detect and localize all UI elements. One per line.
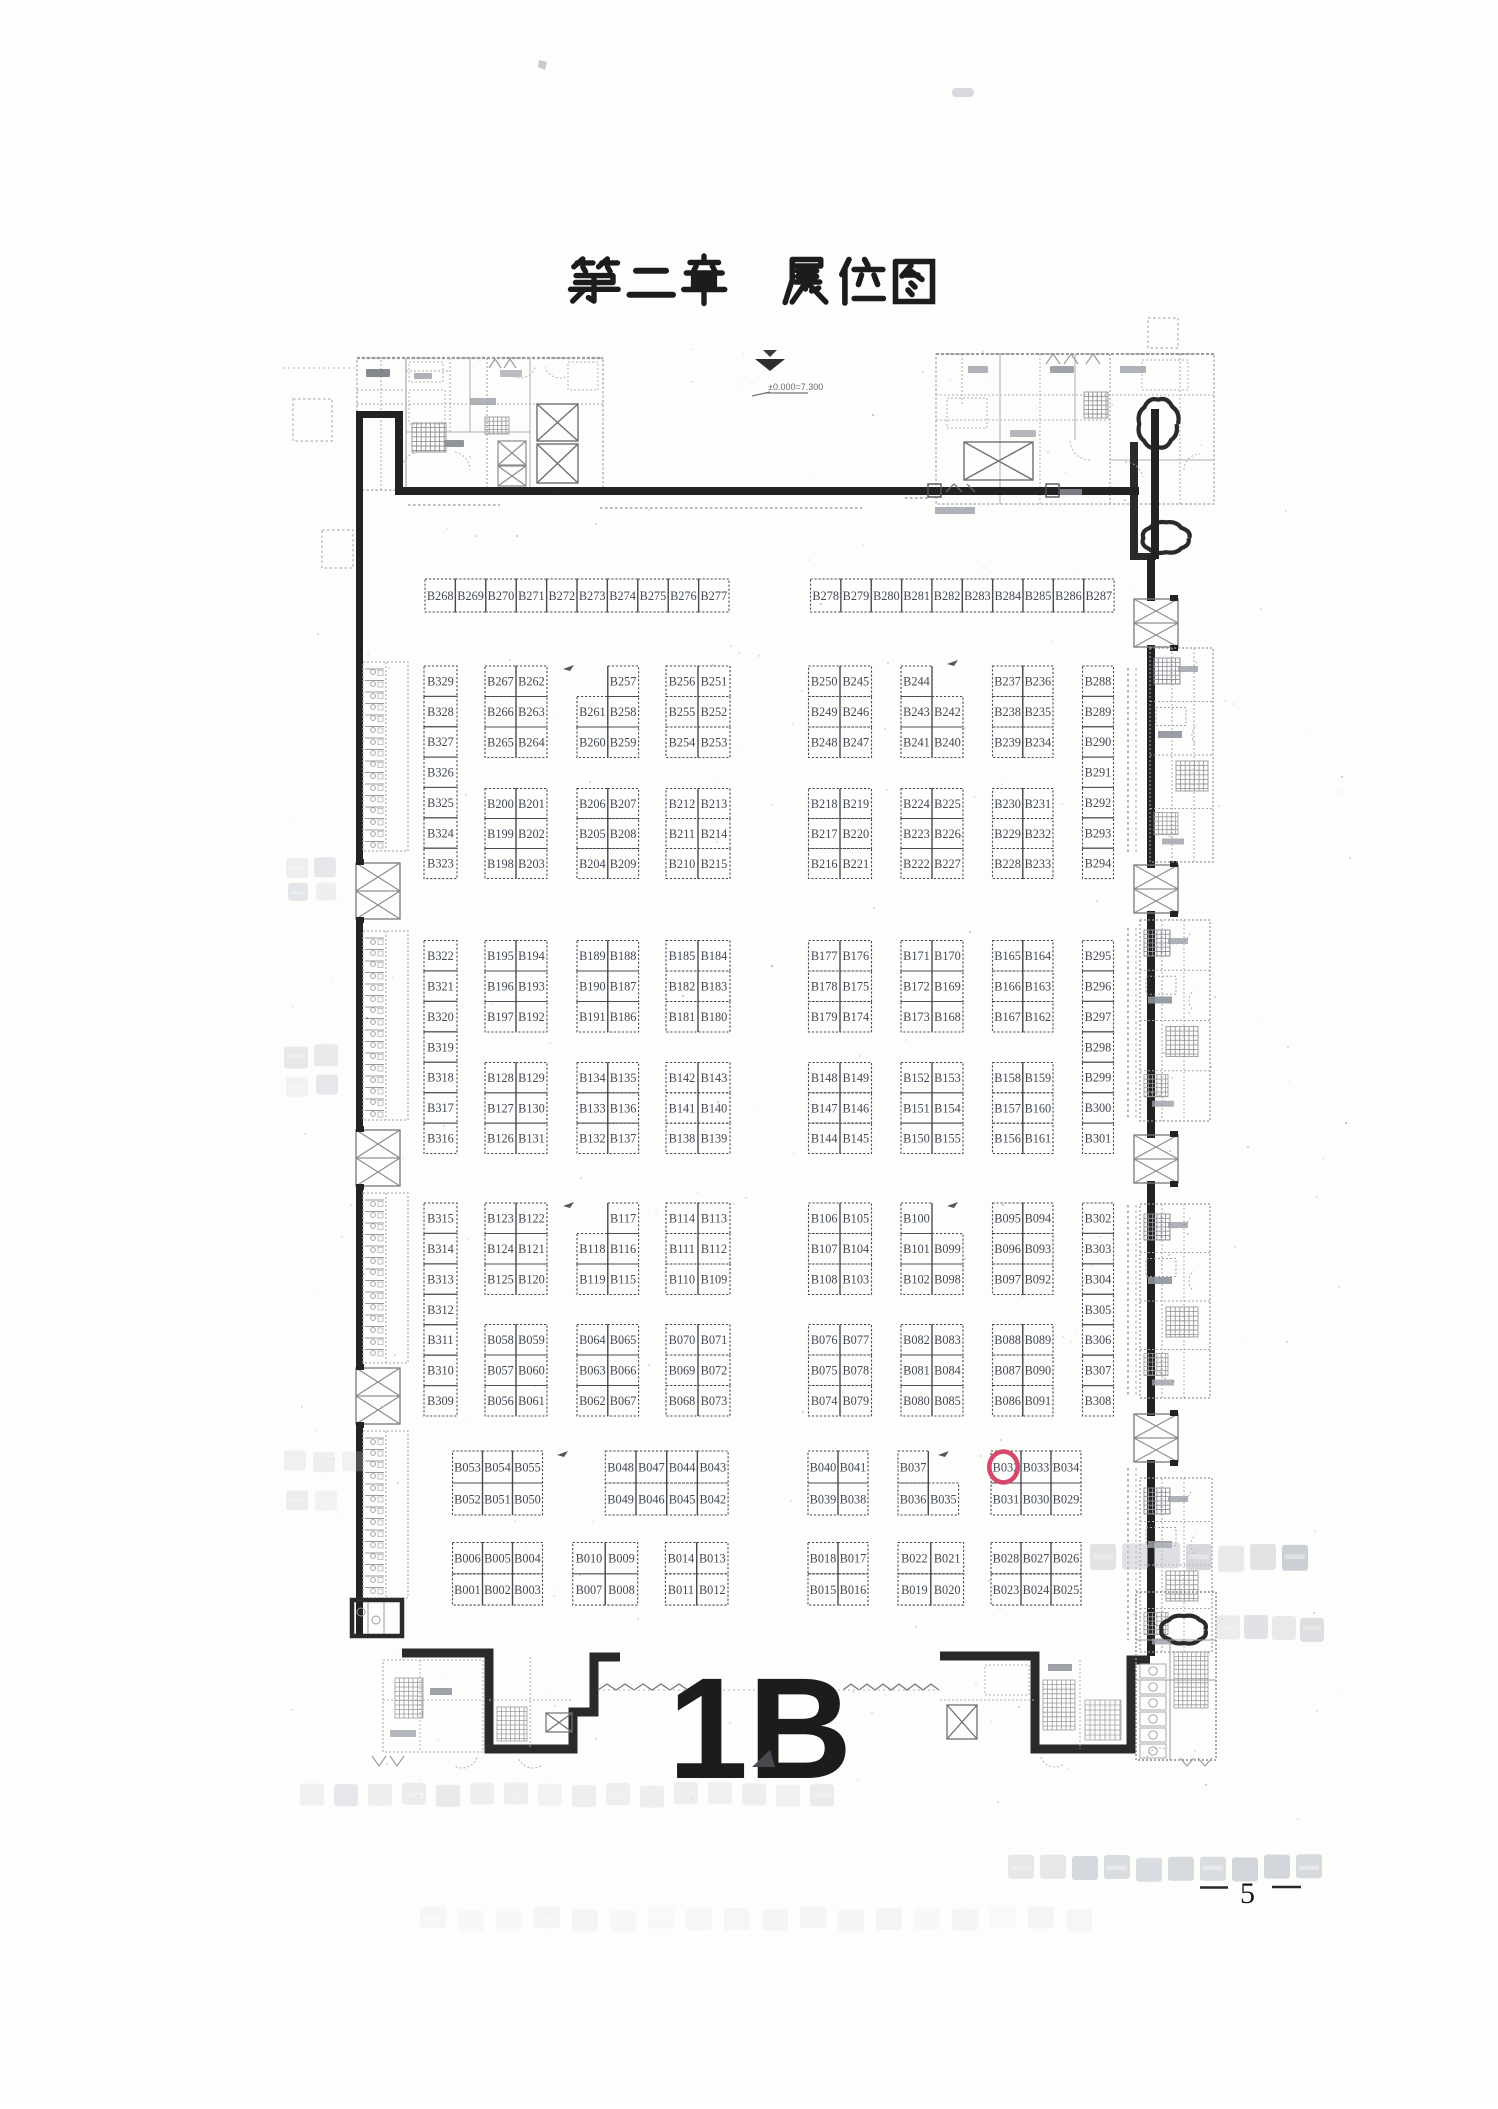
svg-text:B067: B067	[610, 1394, 637, 1408]
svg-text:B210: B210	[669, 857, 696, 871]
svg-text:B194: B194	[518, 949, 545, 963]
svg-text:B234: B234	[1025, 736, 1052, 750]
svg-text:B213: B213	[701, 797, 728, 811]
svg-text:B259: B259	[610, 736, 637, 750]
svg-text:B317: B317	[427, 1101, 454, 1115]
svg-text:B070: B070	[669, 1333, 696, 1347]
svg-text:B008: B008	[608, 1583, 635, 1597]
svg-text:B007: B007	[576, 1583, 603, 1597]
svg-text:B174: B174	[842, 1010, 869, 1024]
svg-text:B215: B215	[701, 857, 728, 871]
svg-text:B077: B077	[842, 1333, 869, 1347]
svg-text:B097: B097	[994, 1273, 1021, 1287]
svg-text:B075: B075	[811, 1364, 838, 1378]
svg-text:B093: B093	[1025, 1242, 1052, 1256]
svg-text:B313: B313	[427, 1272, 454, 1286]
svg-text:B298: B298	[1085, 1040, 1112, 1054]
svg-text:B137: B137	[610, 1132, 637, 1146]
svg-text:B019: B019	[901, 1583, 928, 1597]
svg-text:B066: B066	[610, 1364, 637, 1378]
svg-text:B282: B282	[934, 589, 961, 603]
svg-text:B329: B329	[427, 675, 454, 689]
svg-text:B033: B033	[1023, 1460, 1050, 1474]
svg-text:B201: B201	[518, 797, 545, 811]
svg-text:B327: B327	[427, 735, 454, 749]
svg-text:B085: B085	[934, 1394, 961, 1408]
svg-text:B187: B187	[610, 980, 637, 994]
svg-text:B158: B158	[994, 1071, 1021, 1085]
svg-text:B171: B171	[903, 949, 930, 963]
svg-text:B071: B071	[701, 1333, 728, 1347]
svg-text:B020: B020	[934, 1583, 961, 1597]
svg-text:B036: B036	[900, 1492, 927, 1506]
svg-text:B001: B001	[454, 1583, 481, 1597]
svg-text:B204: B204	[579, 857, 606, 871]
svg-text:B144: B144	[811, 1132, 838, 1146]
svg-text:B127: B127	[487, 1101, 514, 1115]
svg-text:B073: B073	[701, 1394, 728, 1408]
svg-text:B214: B214	[701, 827, 728, 841]
svg-text:B086: B086	[994, 1394, 1021, 1408]
svg-text:B160: B160	[1025, 1101, 1052, 1115]
svg-text:B112: B112	[701, 1242, 727, 1256]
svg-text:B069: B069	[669, 1364, 696, 1378]
svg-text:B025: B025	[1053, 1583, 1080, 1597]
svg-text:B142: B142	[669, 1071, 696, 1085]
svg-text:B129: B129	[518, 1071, 545, 1085]
svg-text:B303: B303	[1085, 1242, 1112, 1256]
svg-text:B311: B311	[427, 1333, 453, 1347]
svg-text:B286: B286	[1055, 589, 1082, 603]
svg-text:B184: B184	[701, 949, 728, 963]
svg-text:B206: B206	[579, 797, 606, 811]
svg-text:B055: B055	[514, 1460, 541, 1474]
svg-text:B176: B176	[842, 949, 869, 963]
svg-text:B316: B316	[427, 1132, 454, 1146]
svg-text:B314: B314	[427, 1242, 454, 1256]
svg-text:B218: B218	[811, 797, 838, 811]
svg-text:B048: B048	[607, 1460, 634, 1474]
svg-text:B258: B258	[610, 705, 637, 719]
svg-text:B140: B140	[701, 1101, 728, 1115]
svg-text:B217: B217	[811, 827, 838, 841]
svg-text:B167: B167	[994, 1010, 1021, 1024]
svg-text:B078: B078	[842, 1364, 869, 1378]
svg-text:B043: B043	[699, 1460, 726, 1474]
svg-text:B030: B030	[1023, 1492, 1050, 1506]
svg-text:B056: B056	[487, 1394, 514, 1408]
svg-text:B154: B154	[934, 1101, 961, 1115]
svg-text:B241: B241	[903, 736, 930, 750]
svg-text:B094: B094	[1025, 1212, 1052, 1226]
svg-text:B098: B098	[934, 1273, 961, 1287]
svg-text:B138: B138	[669, 1132, 696, 1146]
svg-text:B042: B042	[699, 1492, 726, 1506]
svg-text:B191: B191	[579, 1010, 606, 1024]
svg-text:B280: B280	[873, 589, 900, 603]
svg-text:B179: B179	[811, 1010, 838, 1024]
svg-text:B310: B310	[427, 1364, 454, 1378]
svg-text:B162: B162	[1025, 1010, 1052, 1024]
svg-text:B255: B255	[669, 705, 696, 719]
svg-text:B059: B059	[518, 1333, 545, 1347]
svg-text:B209: B209	[610, 857, 637, 871]
svg-text:B315: B315	[427, 1212, 454, 1226]
svg-text:B170: B170	[934, 949, 961, 963]
svg-text:B175: B175	[842, 980, 869, 994]
svg-text:B269: B269	[457, 589, 484, 603]
svg-text:±0.000=7.300: ±0.000=7.300	[768, 382, 823, 392]
svg-text:B300: B300	[1085, 1101, 1112, 1115]
svg-text:B172: B172	[903, 980, 930, 994]
svg-text:B128: B128	[487, 1071, 514, 1085]
svg-text:B002: B002	[484, 1583, 511, 1597]
svg-text:B133: B133	[579, 1101, 606, 1115]
svg-text:B029: B029	[1053, 1492, 1080, 1506]
svg-text:B004: B004	[514, 1552, 541, 1566]
svg-text:B278: B278	[812, 589, 839, 603]
svg-text:B251: B251	[701, 675, 728, 689]
svg-text:B053: B053	[454, 1460, 481, 1474]
svg-text:B028: B028	[993, 1552, 1020, 1566]
svg-text:B221: B221	[842, 857, 869, 871]
svg-text:B047: B047	[638, 1460, 665, 1474]
svg-text:B295: B295	[1085, 949, 1112, 963]
svg-text:B051: B051	[484, 1492, 511, 1506]
svg-text:B024: B024	[1023, 1583, 1050, 1597]
svg-text:B116: B116	[610, 1242, 636, 1256]
svg-text:B226: B226	[934, 827, 961, 841]
svg-text:B161: B161	[1025, 1132, 1052, 1146]
svg-text:B236: B236	[1025, 675, 1052, 689]
svg-text:B205: B205	[579, 827, 606, 841]
svg-text:B143: B143	[701, 1071, 728, 1085]
svg-text:B238: B238	[994, 705, 1021, 719]
svg-text:B294: B294	[1085, 857, 1112, 871]
svg-text:B242: B242	[934, 705, 961, 719]
svg-text:B166: B166	[994, 980, 1021, 994]
svg-text:B076: B076	[811, 1333, 838, 1347]
svg-text:B110: B110	[669, 1273, 695, 1287]
svg-text:B052: B052	[454, 1492, 481, 1506]
svg-text:B009: B009	[608, 1552, 635, 1566]
svg-text:B277: B277	[700, 589, 727, 603]
svg-text:B139: B139	[701, 1132, 728, 1146]
svg-text:B049: B049	[607, 1492, 634, 1506]
svg-text:B114: B114	[669, 1212, 695, 1226]
svg-text:B289: B289	[1085, 705, 1112, 719]
svg-text:B250: B250	[811, 675, 838, 689]
svg-text:B279: B279	[843, 589, 870, 603]
svg-text:B106: B106	[811, 1212, 838, 1226]
svg-text:B148: B148	[811, 1071, 838, 1085]
svg-text:B096: B096	[994, 1242, 1021, 1256]
svg-text:B003: B003	[514, 1583, 541, 1597]
svg-text:B102: B102	[903, 1273, 930, 1287]
svg-text:B062: B062	[579, 1394, 606, 1408]
svg-text:B291: B291	[1085, 766, 1112, 780]
svg-text:B088: B088	[994, 1333, 1021, 1347]
svg-text:B104: B104	[842, 1242, 869, 1256]
svg-text:B240: B240	[934, 736, 961, 750]
svg-text:B035: B035	[930, 1492, 957, 1506]
svg-text:B232: B232	[1025, 827, 1052, 841]
svg-text:B122: B122	[518, 1212, 545, 1226]
svg-text:B297: B297	[1085, 1010, 1112, 1024]
svg-text:B186: B186	[610, 1010, 637, 1024]
svg-text:B153: B153	[934, 1071, 961, 1085]
svg-text:B095: B095	[994, 1212, 1021, 1226]
svg-text:B017: B017	[840, 1552, 867, 1566]
svg-text:B080: B080	[903, 1394, 930, 1408]
svg-text:B268: B268	[427, 589, 454, 603]
svg-text:B248: B248	[811, 736, 838, 750]
svg-text:B054: B054	[484, 1460, 511, 1474]
svg-text:B109: B109	[701, 1273, 728, 1287]
svg-text:B090: B090	[1025, 1364, 1052, 1378]
svg-text:B013: B013	[699, 1552, 726, 1566]
svg-text:B220: B220	[842, 827, 869, 841]
svg-text:B237: B237	[994, 675, 1021, 689]
svg-text:B006: B006	[454, 1552, 481, 1566]
svg-text:B288: B288	[1085, 675, 1112, 689]
svg-text:B285: B285	[1025, 589, 1052, 603]
svg-text:B041: B041	[840, 1460, 867, 1474]
svg-text:B208: B208	[610, 827, 637, 841]
svg-text:B103: B103	[842, 1273, 869, 1287]
svg-text:B164: B164	[1025, 949, 1052, 963]
svg-text:B272: B272	[548, 589, 575, 603]
svg-text:B037: B037	[900, 1460, 927, 1474]
svg-text:B296: B296	[1085, 979, 1112, 993]
svg-text:B165: B165	[994, 949, 1021, 963]
svg-text:B120: B120	[518, 1273, 545, 1287]
svg-text:B177: B177	[811, 949, 838, 963]
svg-text:B198: B198	[487, 857, 514, 871]
svg-text:B249: B249	[811, 705, 838, 719]
svg-text:B126: B126	[487, 1132, 514, 1146]
svg-text:B200: B200	[487, 797, 514, 811]
svg-text:B044: B044	[669, 1460, 696, 1474]
svg-text:B207: B207	[610, 797, 637, 811]
svg-text:B119: B119	[579, 1273, 605, 1287]
svg-text:B257: B257	[610, 675, 637, 689]
svg-text:B092: B092	[1025, 1273, 1052, 1287]
svg-text:B157: B157	[994, 1101, 1021, 1115]
svg-text:B136: B136	[610, 1101, 637, 1115]
svg-text:B307: B307	[1085, 1364, 1112, 1378]
svg-text:B254: B254	[669, 736, 696, 750]
svg-text:B132: B132	[579, 1132, 606, 1146]
svg-text:B058: B058	[487, 1333, 514, 1347]
svg-text:B107: B107	[811, 1242, 838, 1256]
svg-text:B145: B145	[842, 1132, 869, 1146]
svg-text:B287: B287	[1085, 589, 1112, 603]
svg-text:B100: B100	[903, 1212, 930, 1226]
svg-text:B195: B195	[487, 949, 514, 963]
svg-text:B151: B151	[903, 1101, 930, 1115]
svg-text:B230: B230	[994, 797, 1021, 811]
svg-text:B016: B016	[840, 1583, 867, 1597]
svg-text:B302: B302	[1085, 1212, 1112, 1226]
svg-text:B015: B015	[810, 1583, 837, 1597]
svg-text:B040: B040	[810, 1460, 837, 1474]
svg-text:B199: B199	[487, 827, 514, 841]
svg-text:B262: B262	[518, 675, 545, 689]
svg-text:B010: B010	[576, 1552, 603, 1566]
svg-text:B045: B045	[669, 1492, 696, 1506]
svg-text:B323: B323	[427, 857, 454, 871]
svg-text:B111: B111	[669, 1242, 695, 1256]
svg-text:B099: B099	[934, 1242, 961, 1256]
svg-text:B188: B188	[610, 949, 637, 963]
svg-text:B219: B219	[842, 797, 869, 811]
svg-text:B247: B247	[842, 736, 869, 750]
svg-text:B275: B275	[640, 589, 667, 603]
svg-text:B308: B308	[1085, 1394, 1112, 1408]
svg-text:B115: B115	[610, 1273, 636, 1287]
svg-text:B123: B123	[487, 1212, 514, 1226]
svg-text:B039: B039	[810, 1492, 837, 1506]
svg-text:B021: B021	[934, 1552, 961, 1566]
svg-text:B320: B320	[427, 1010, 454, 1024]
svg-text:B083: B083	[934, 1333, 961, 1347]
svg-text:B306: B306	[1085, 1333, 1112, 1347]
svg-text:B155: B155	[934, 1132, 961, 1146]
svg-text:B023: B023	[993, 1583, 1020, 1597]
svg-text:B216: B216	[811, 857, 838, 871]
svg-text:B125: B125	[487, 1273, 514, 1287]
svg-text:B190: B190	[579, 980, 606, 994]
svg-text:B146: B146	[842, 1101, 869, 1115]
svg-text:B223: B223	[903, 827, 930, 841]
svg-text:B261: B261	[579, 705, 606, 719]
svg-text:B169: B169	[934, 980, 961, 994]
svg-text:B060: B060	[518, 1364, 545, 1378]
svg-text:B068: B068	[669, 1394, 696, 1408]
svg-text:B173: B173	[903, 1010, 930, 1024]
svg-text:B284: B284	[994, 589, 1021, 603]
svg-text:B252: B252	[701, 705, 728, 719]
svg-text:5: 5	[1240, 1877, 1255, 1910]
svg-text:B263: B263	[518, 705, 545, 719]
svg-text:B038: B038	[840, 1492, 867, 1506]
svg-text:B064: B064	[579, 1333, 606, 1347]
svg-text:B274: B274	[609, 589, 636, 603]
svg-text:B124: B124	[487, 1242, 514, 1256]
svg-text:B260: B260	[579, 736, 606, 750]
svg-text:B185: B185	[669, 949, 696, 963]
svg-text:B159: B159	[1025, 1071, 1052, 1085]
svg-text:B152: B152	[903, 1071, 930, 1085]
svg-text:B087: B087	[994, 1364, 1021, 1378]
svg-text:B079: B079	[842, 1394, 869, 1408]
svg-text:B256: B256	[669, 675, 696, 689]
svg-text:B065: B065	[610, 1333, 637, 1347]
svg-text:B225: B225	[934, 797, 961, 811]
svg-text:B018: B018	[810, 1552, 837, 1566]
svg-text:B117: B117	[610, 1212, 636, 1226]
svg-text:B222: B222	[903, 857, 930, 871]
svg-text:B005: B005	[484, 1552, 511, 1566]
svg-text:B057: B057	[487, 1364, 514, 1378]
svg-text:B101: B101	[903, 1242, 930, 1256]
svg-text:B149: B149	[842, 1071, 869, 1085]
svg-text:B089: B089	[1025, 1333, 1052, 1347]
svg-text:B229: B229	[994, 827, 1021, 841]
svg-text:B325: B325	[427, 796, 454, 810]
svg-text:B253: B253	[701, 736, 728, 750]
svg-text:B292: B292	[1085, 796, 1112, 810]
svg-text:B203: B203	[518, 857, 545, 871]
svg-text:B084: B084	[934, 1364, 961, 1378]
svg-text:B081: B081	[903, 1364, 930, 1378]
svg-text:B212: B212	[669, 797, 696, 811]
svg-text:B108: B108	[811, 1273, 838, 1287]
svg-text:B239: B239	[994, 736, 1021, 750]
svg-text:B270: B270	[488, 589, 515, 603]
svg-text:B309: B309	[427, 1394, 454, 1408]
svg-text:B196: B196	[487, 980, 514, 994]
svg-text:B134: B134	[579, 1071, 606, 1085]
svg-text:B046: B046	[638, 1492, 665, 1506]
svg-text:B193: B193	[518, 980, 545, 994]
svg-text:B014: B014	[668, 1552, 695, 1566]
svg-text:B180: B180	[701, 1010, 728, 1024]
svg-text:B326: B326	[427, 766, 454, 780]
svg-text:B163: B163	[1025, 980, 1052, 994]
svg-text:B141: B141	[669, 1101, 696, 1115]
svg-text:B202: B202	[518, 827, 545, 841]
svg-text:B328: B328	[427, 705, 454, 719]
svg-text:B265: B265	[487, 736, 514, 750]
svg-text:B245: B245	[842, 675, 869, 689]
svg-text:B293: B293	[1085, 826, 1112, 840]
svg-text:B192: B192	[518, 1010, 545, 1024]
svg-text:B318: B318	[427, 1071, 454, 1085]
svg-text:B121: B121	[518, 1242, 545, 1256]
svg-text:B322: B322	[427, 949, 454, 963]
svg-text:B082: B082	[903, 1333, 930, 1347]
svg-text:B243: B243	[903, 705, 930, 719]
svg-text:B105: B105	[842, 1212, 869, 1226]
svg-text:B319: B319	[427, 1040, 454, 1054]
svg-text:B027: B027	[1023, 1552, 1050, 1566]
svg-text:B233: B233	[1025, 857, 1052, 871]
svg-text:B197: B197	[487, 1010, 514, 1024]
svg-text:B246: B246	[842, 705, 869, 719]
svg-text:B150: B150	[903, 1132, 930, 1146]
svg-text:B283: B283	[964, 589, 991, 603]
svg-text:B074: B074	[811, 1394, 838, 1408]
svg-text:B118: B118	[579, 1242, 605, 1256]
svg-text:B267: B267	[487, 675, 514, 689]
svg-text:B264: B264	[518, 736, 545, 750]
svg-text:B178: B178	[811, 980, 838, 994]
svg-text:B011: B011	[668, 1583, 694, 1597]
svg-text:B224: B224	[903, 797, 930, 811]
svg-text:B063: B063	[579, 1364, 606, 1378]
svg-text:B273: B273	[579, 589, 606, 603]
svg-text:B235: B235	[1025, 705, 1052, 719]
svg-text:B228: B228	[994, 857, 1021, 871]
svg-text:B304: B304	[1085, 1272, 1112, 1286]
svg-text:B266: B266	[487, 705, 514, 719]
svg-text:B276: B276	[670, 589, 697, 603]
svg-text:B183: B183	[701, 980, 728, 994]
svg-text:B031: B031	[993, 1492, 1020, 1506]
svg-text:B050: B050	[514, 1492, 541, 1506]
